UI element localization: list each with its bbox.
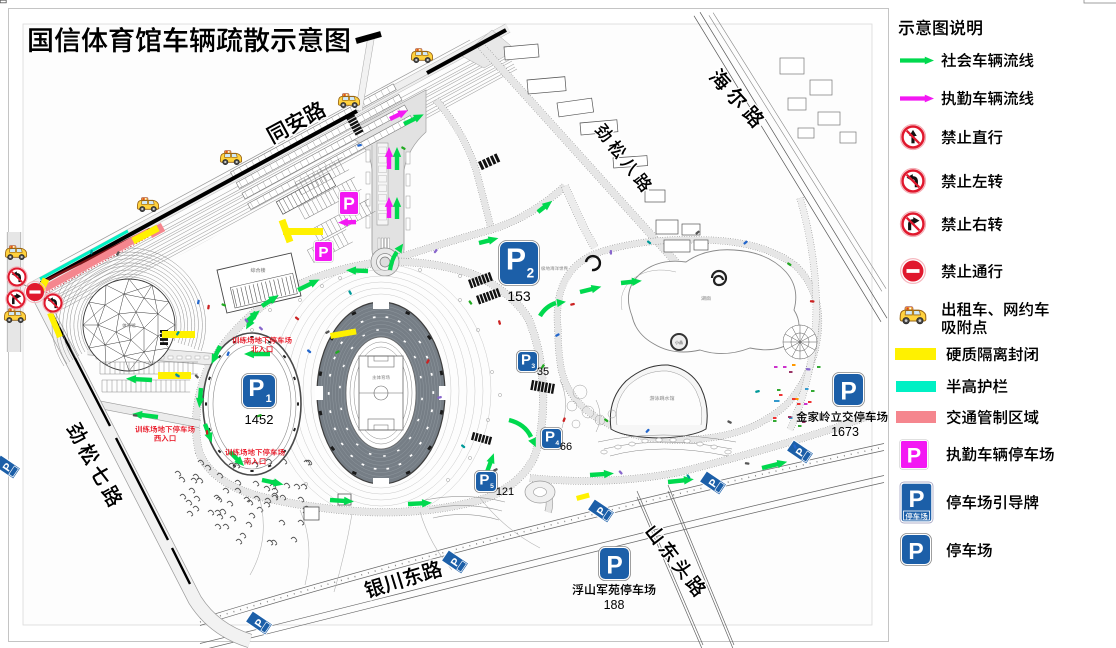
svg-text:2: 2 <box>527 265 535 280</box>
svg-text:1452: 1452 <box>245 412 274 427</box>
svg-text:P: P <box>908 538 923 564</box>
svg-text:188: 188 <box>604 598 625 612</box>
svg-text:5: 5 <box>490 483 494 490</box>
svg-text:121: 121 <box>496 486 514 498</box>
svg-text:P: P <box>521 352 531 369</box>
svg-text:P: P <box>606 552 622 579</box>
svg-text:P: P <box>343 194 355 214</box>
svg-text:P: P <box>545 429 555 446</box>
svg-text:153: 153 <box>507 288 531 304</box>
svg-text:P: P <box>248 375 264 402</box>
svg-text:1: 1 <box>266 393 272 405</box>
svg-text:4: 4 <box>555 440 559 447</box>
svg-text:66: 66 <box>560 441 572 453</box>
svg-text:P: P <box>908 486 924 513</box>
svg-text:P: P <box>907 443 921 468</box>
svg-text:3: 3 <box>531 363 535 370</box>
svg-text:P: P <box>506 244 526 277</box>
svg-text:P: P <box>318 244 328 261</box>
svg-text:P: P <box>840 378 856 405</box>
svg-text:1673: 1673 <box>831 425 859 439</box>
svg-text:P: P <box>479 472 489 489</box>
